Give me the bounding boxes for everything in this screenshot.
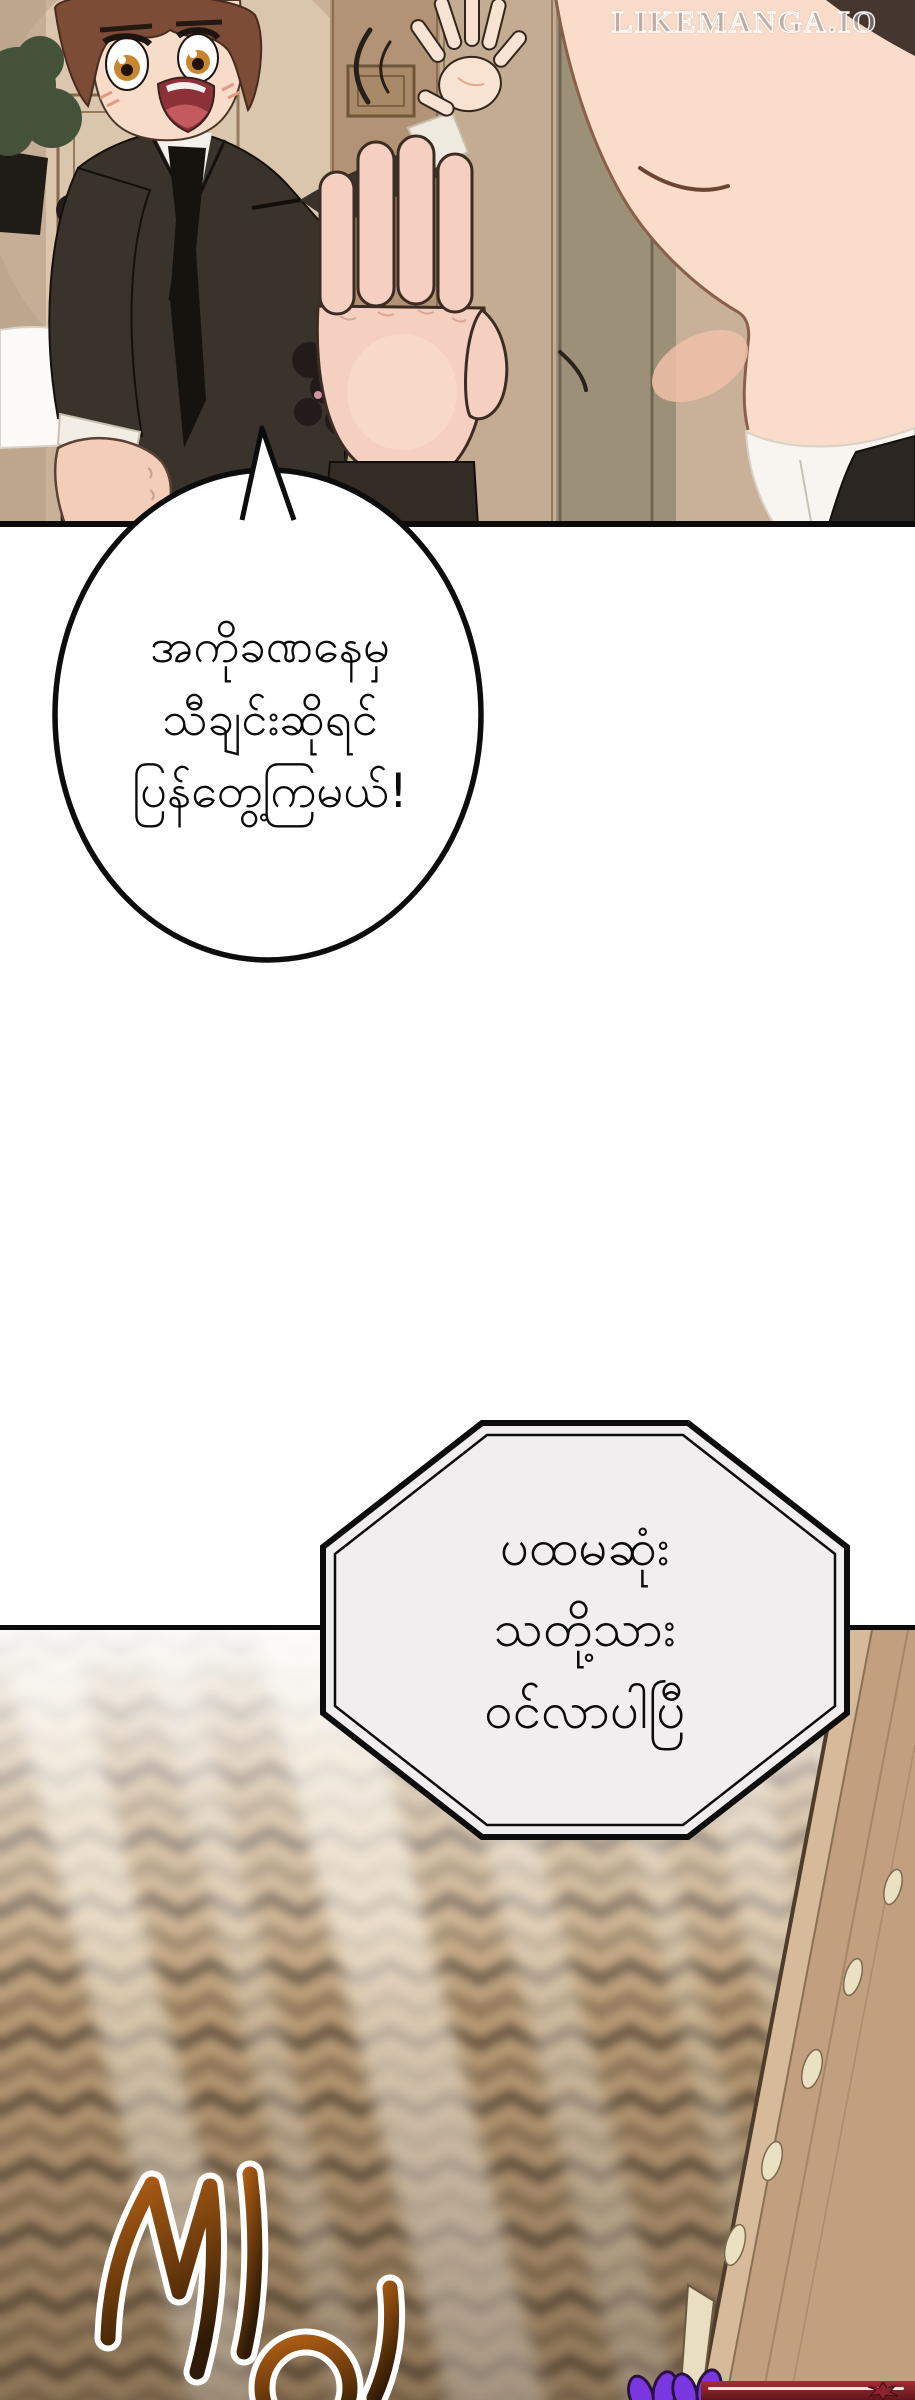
finger — [398, 136, 434, 304]
speech-text-round: အကိုခဏနေမှ သီချင်းဆိုရင် ပြန်တွေ့ကြမယ်! — [70, 555, 470, 885]
finger — [320, 172, 354, 314]
plant-pot — [0, 150, 48, 235]
site-watermark: LIKEMANGA.IO — [612, 4, 912, 48]
speech-line: ဝင်လာပါပြီ — [484, 1671, 685, 1753]
speech-line: ပထမဆုံး — [500, 1508, 670, 1590]
sfx-creak-text — [80, 2140, 420, 2400]
finger — [438, 154, 472, 312]
finger — [358, 142, 394, 306]
speech-text-octagon: ပထမဆုံး သတို့သား ဝင်လာပါပြီ — [330, 1435, 840, 1825]
banner-star-icon — [868, 2382, 898, 2400]
manga-page: LIKEMANGA.IO အကိုခဏနေမှ သီချင်းဆိုရင် ပြ… — [0, 0, 915, 2400]
speech-line: သီချင်းဆိုရင် — [162, 684, 378, 757]
speech-line: အကိုခဏနေမှ — [150, 611, 390, 684]
sfx-strokes — [108, 2174, 392, 2400]
speech-line: သတို့သား — [494, 1589, 676, 1671]
speech-line: ပြန်တွေ့ကြမယ်! — [132, 756, 408, 829]
